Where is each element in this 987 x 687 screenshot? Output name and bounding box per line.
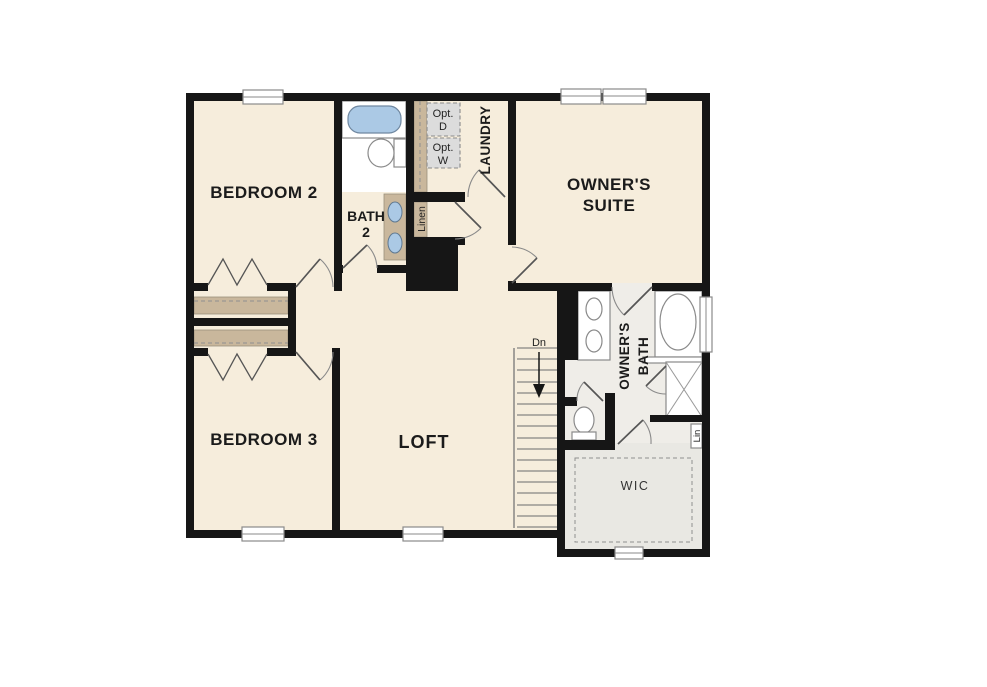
window-bedroom2 xyxy=(243,90,283,104)
closet-shelf-bedroom3 xyxy=(194,330,288,346)
window-owners-suite-2 xyxy=(603,89,646,104)
label-linen-closet: Linen xyxy=(416,206,428,232)
label-wic: WIC xyxy=(621,479,650,493)
label-owners-bath-line2: BATH xyxy=(636,337,651,376)
floor-plan-page: BEDROOM 2 BATH 2 Opt. D Opt. W LAUNDRY L… xyxy=(0,0,987,687)
label-owners-suite-line2: SUITE xyxy=(583,196,636,215)
vanity-owners-bath xyxy=(578,291,610,360)
floor-plan: BEDROOM 2 BATH 2 Opt. D Opt. W LAUNDRY L… xyxy=(0,0,987,687)
window-wic xyxy=(615,547,643,559)
label-bedroom3: BEDROOM 3 xyxy=(210,430,317,449)
bathtub-bath2 xyxy=(342,101,406,138)
label-laundry: LAUNDRY xyxy=(478,106,493,175)
label-stairs-down: Dn xyxy=(532,337,546,349)
window-owners-suite-1 xyxy=(561,89,601,104)
shower-owners-bath xyxy=(666,362,702,417)
label-opt-dryer-line1: Opt. xyxy=(433,108,454,120)
floor-wic xyxy=(557,443,710,557)
label-owners-suite-line1: OWNER'S xyxy=(567,175,651,194)
label-opt-washer-line1: Opt. xyxy=(433,142,454,154)
closet-shelf-bedroom2 xyxy=(194,297,288,314)
label-bath2-line2: 2 xyxy=(362,224,370,240)
laundry-shelf xyxy=(414,101,427,192)
label-opt-dryer-line2: D xyxy=(439,121,447,133)
label-bath2-line1: BATH xyxy=(347,208,385,224)
toilet-owners-bath xyxy=(572,407,596,440)
toilet-bath2 xyxy=(368,139,406,167)
label-opt-washer-line2: W xyxy=(438,155,449,167)
window-bedroom3 xyxy=(242,527,284,541)
vanity-bath2 xyxy=(384,194,406,260)
label-bedroom2: BEDROOM 2 xyxy=(210,183,317,202)
window-loft xyxy=(403,527,443,541)
label-owners-bath-line1: OWNER'S xyxy=(617,322,632,389)
label-loft: LOFT xyxy=(399,432,450,452)
window-owners-bath xyxy=(700,297,712,352)
label-linen-cabinet: Lin xyxy=(692,430,703,443)
